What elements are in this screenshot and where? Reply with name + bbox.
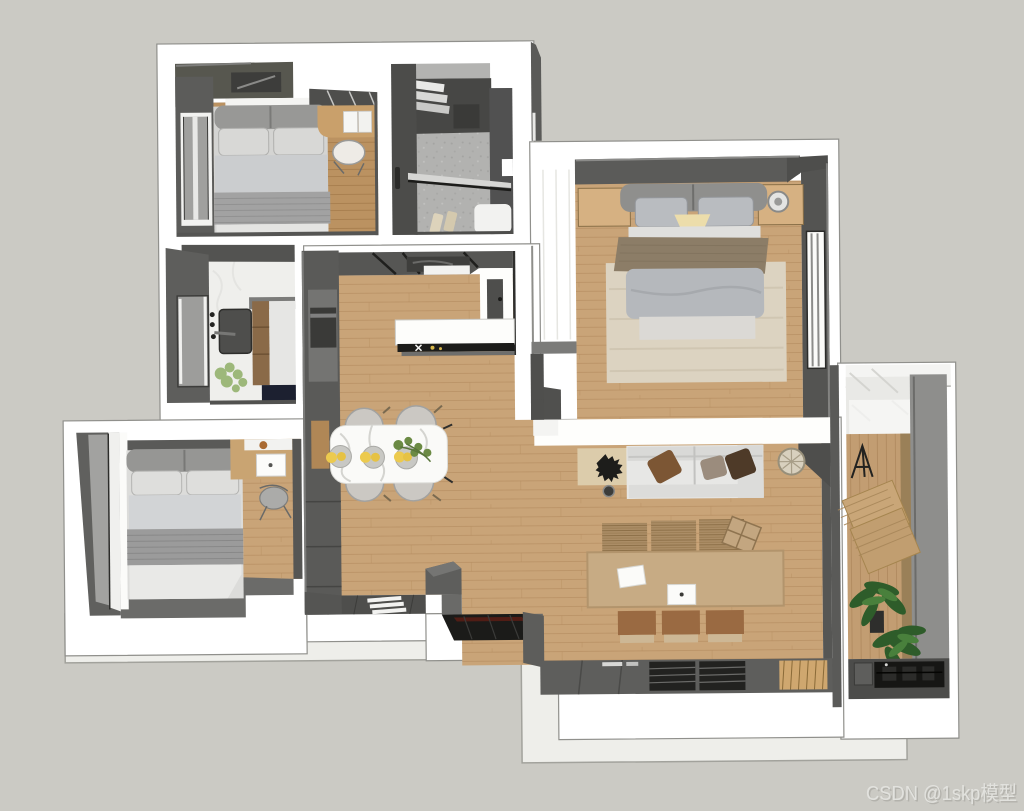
svg-text:CSDN @1skp模型: CSDN @1skp模型: [866, 782, 1017, 805]
